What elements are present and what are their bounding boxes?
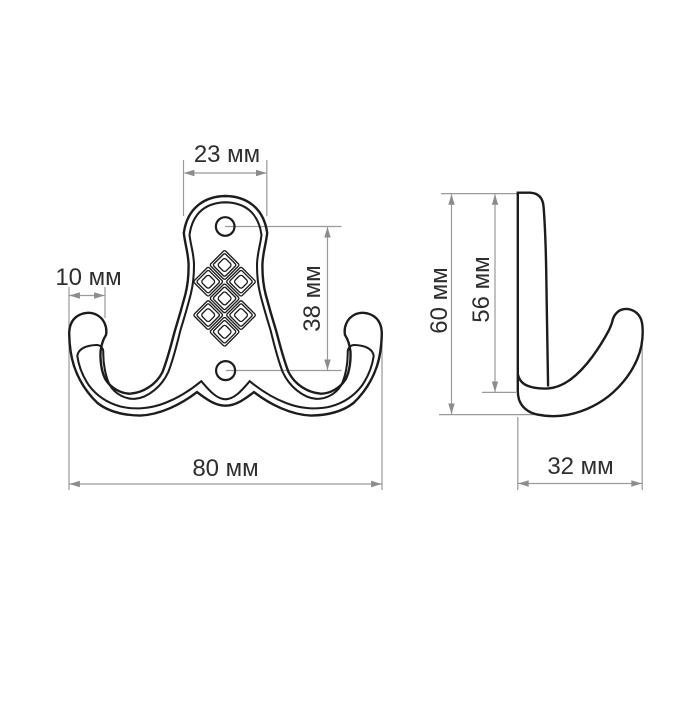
svg-text:56 мм: 56 мм [468, 256, 495, 322]
svg-text:10 мм: 10 мм [55, 264, 121, 291]
svg-text:80 мм: 80 мм [192, 455, 258, 482]
svg-text:32 мм: 32 мм [547, 453, 613, 480]
svg-text:38 мм: 38 мм [299, 265, 326, 331]
svg-text:23 мм: 23 мм [194, 141, 260, 168]
svg-text:60 мм: 60 мм [426, 267, 453, 333]
